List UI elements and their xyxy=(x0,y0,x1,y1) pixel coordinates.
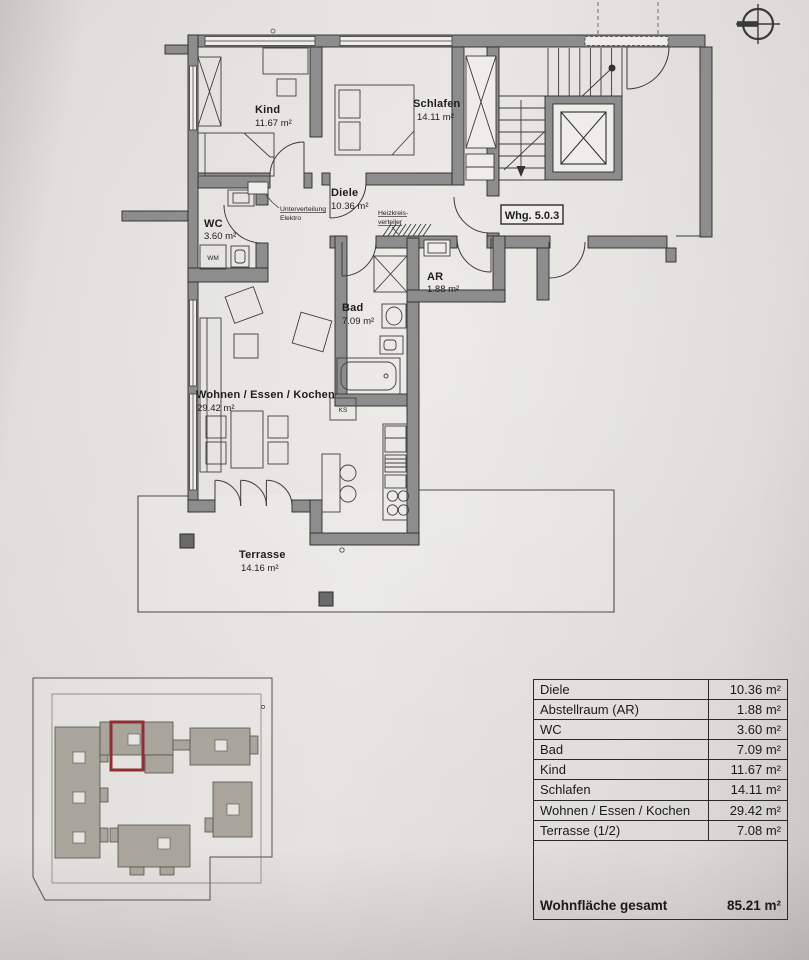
svg-text:Whg. 5.0.3: Whg. 5.0.3 xyxy=(505,210,559,222)
area-row: Kind11.67 m² xyxy=(534,760,787,780)
area-row-value: 7.08 m² xyxy=(708,821,787,840)
room-area-schlafen: 14.11 m² xyxy=(417,112,454,123)
area-row-value: 1.88 m² xyxy=(708,700,787,719)
room-label-bad: Bad xyxy=(342,302,363,314)
total-label: Wohnfläche gesamt xyxy=(540,898,667,913)
floor-plan-sheet: Kind 11.67 m² Schlafen 14.11 m² Diele 10… xyxy=(0,0,809,960)
small-annotations: Unterverteilung Elektro Heizkreis- verte… xyxy=(207,195,408,414)
dining-set xyxy=(206,411,288,468)
label-ks: KS xyxy=(339,407,348,414)
armchair xyxy=(292,312,332,352)
washbasin-bad xyxy=(382,304,406,328)
desk xyxy=(263,48,308,74)
label-unterverteilung: Unterverteilung xyxy=(280,206,326,213)
floor-plan-drawing: Kind 11.67 m² Schlafen 14.11 m² Diele 10… xyxy=(0,0,809,660)
terrace-column xyxy=(180,534,194,548)
survey-mark xyxy=(271,29,275,33)
room-area-terrasse: 14.16 m² xyxy=(241,563,279,574)
area-row: WC3.60 m² xyxy=(534,720,787,740)
room-area-ar: 1.88 m² xyxy=(427,284,459,295)
room-area-wc: 3.60 m² xyxy=(204,231,236,242)
entry-door xyxy=(454,197,490,233)
elevator xyxy=(545,96,622,180)
room-label-diele: Diele xyxy=(331,187,358,199)
area-row-label: Abstellraum (AR) xyxy=(534,700,708,719)
room-area-wohnen: 29.42 m² xyxy=(197,403,235,414)
bed-schlafen xyxy=(335,85,414,155)
room-label-wohnen: Wohnen / Essen / Kochen xyxy=(196,389,335,401)
terrace-column xyxy=(319,592,333,606)
area-row-label: Schlafen xyxy=(534,780,708,799)
window-dashed xyxy=(585,37,668,46)
bed-kind xyxy=(198,133,274,176)
svg-text:verteiler: verteiler xyxy=(378,219,403,226)
svg-text:Elektro: Elektro xyxy=(280,215,301,222)
wardrobe xyxy=(198,57,221,126)
area-row-value: 10.36 m² xyxy=(708,680,787,699)
label-wm: WM xyxy=(207,255,219,262)
chair xyxy=(277,79,296,96)
reference-lines xyxy=(598,2,658,36)
area-row-value: 3.60 m² xyxy=(708,720,787,739)
shower xyxy=(374,256,407,292)
area-row: Terrasse (1/2)7.08 m² xyxy=(534,821,787,841)
room-label-ar: AR xyxy=(427,271,443,283)
room-label-wc: WC xyxy=(204,218,223,230)
toilet-bad xyxy=(380,336,403,354)
stair-direction-arrow xyxy=(517,166,526,177)
area-row: Diele10.36 m² xyxy=(534,680,787,700)
room-area-diele: 10.36 m² xyxy=(331,201,369,212)
area-row-value: 29.42 m² xyxy=(708,801,787,820)
area-table: Diele10.36 m²Abstellraum (AR)1.88 m²WC3.… xyxy=(533,679,788,920)
area-row: Schlafen14.11 m² xyxy=(534,780,787,800)
area-table-rows: Diele10.36 m²Abstellraum (AR)1.88 m²WC3.… xyxy=(534,680,787,841)
site-plan xyxy=(30,668,280,913)
ar-shelf xyxy=(424,240,450,256)
area-row-label: Wohnen / Essen / Kochen xyxy=(534,801,708,820)
area-row-label: Terrasse (1/2) xyxy=(534,821,708,840)
armchair xyxy=(225,287,263,324)
north-marker-icon xyxy=(736,4,780,44)
area-row-label: Kind xyxy=(534,760,708,779)
electric-cabinet xyxy=(248,182,268,194)
room-area-bad: 7.09 m² xyxy=(342,316,374,327)
total-value: 85.21 m² xyxy=(727,898,781,913)
side-table xyxy=(234,334,258,358)
toilet-wc xyxy=(231,246,249,267)
room-label-terrasse: Terrasse xyxy=(239,549,286,561)
area-row: Wohnen / Essen / Kochen29.42 m² xyxy=(534,801,787,821)
shaft xyxy=(466,56,496,180)
area-row-value: 14.11 m² xyxy=(708,780,787,799)
area-row-label: Diele xyxy=(534,680,708,699)
room-label-kind: Kind xyxy=(255,104,280,116)
label-heizkreisverteiler: Heizkreis- xyxy=(378,210,408,217)
room-area-kind: 11.67 m² xyxy=(255,118,292,129)
area-row-value: 7.09 m² xyxy=(708,740,787,759)
area-row: Abstellraum (AR)1.88 m² xyxy=(534,700,787,720)
area-row-label: Bad xyxy=(534,740,708,759)
area-row-label: WC xyxy=(534,720,708,739)
area-row: Bad7.09 m² xyxy=(534,740,787,760)
area-table-spacer xyxy=(534,841,787,895)
area-row-value: 11.67 m² xyxy=(708,760,787,779)
unit-label: Whg. 5.0.3 xyxy=(501,205,563,224)
room-label-schlafen: Schlafen xyxy=(413,98,461,110)
area-table-total: Wohnfläche gesamt 85.21 m² xyxy=(534,895,787,919)
